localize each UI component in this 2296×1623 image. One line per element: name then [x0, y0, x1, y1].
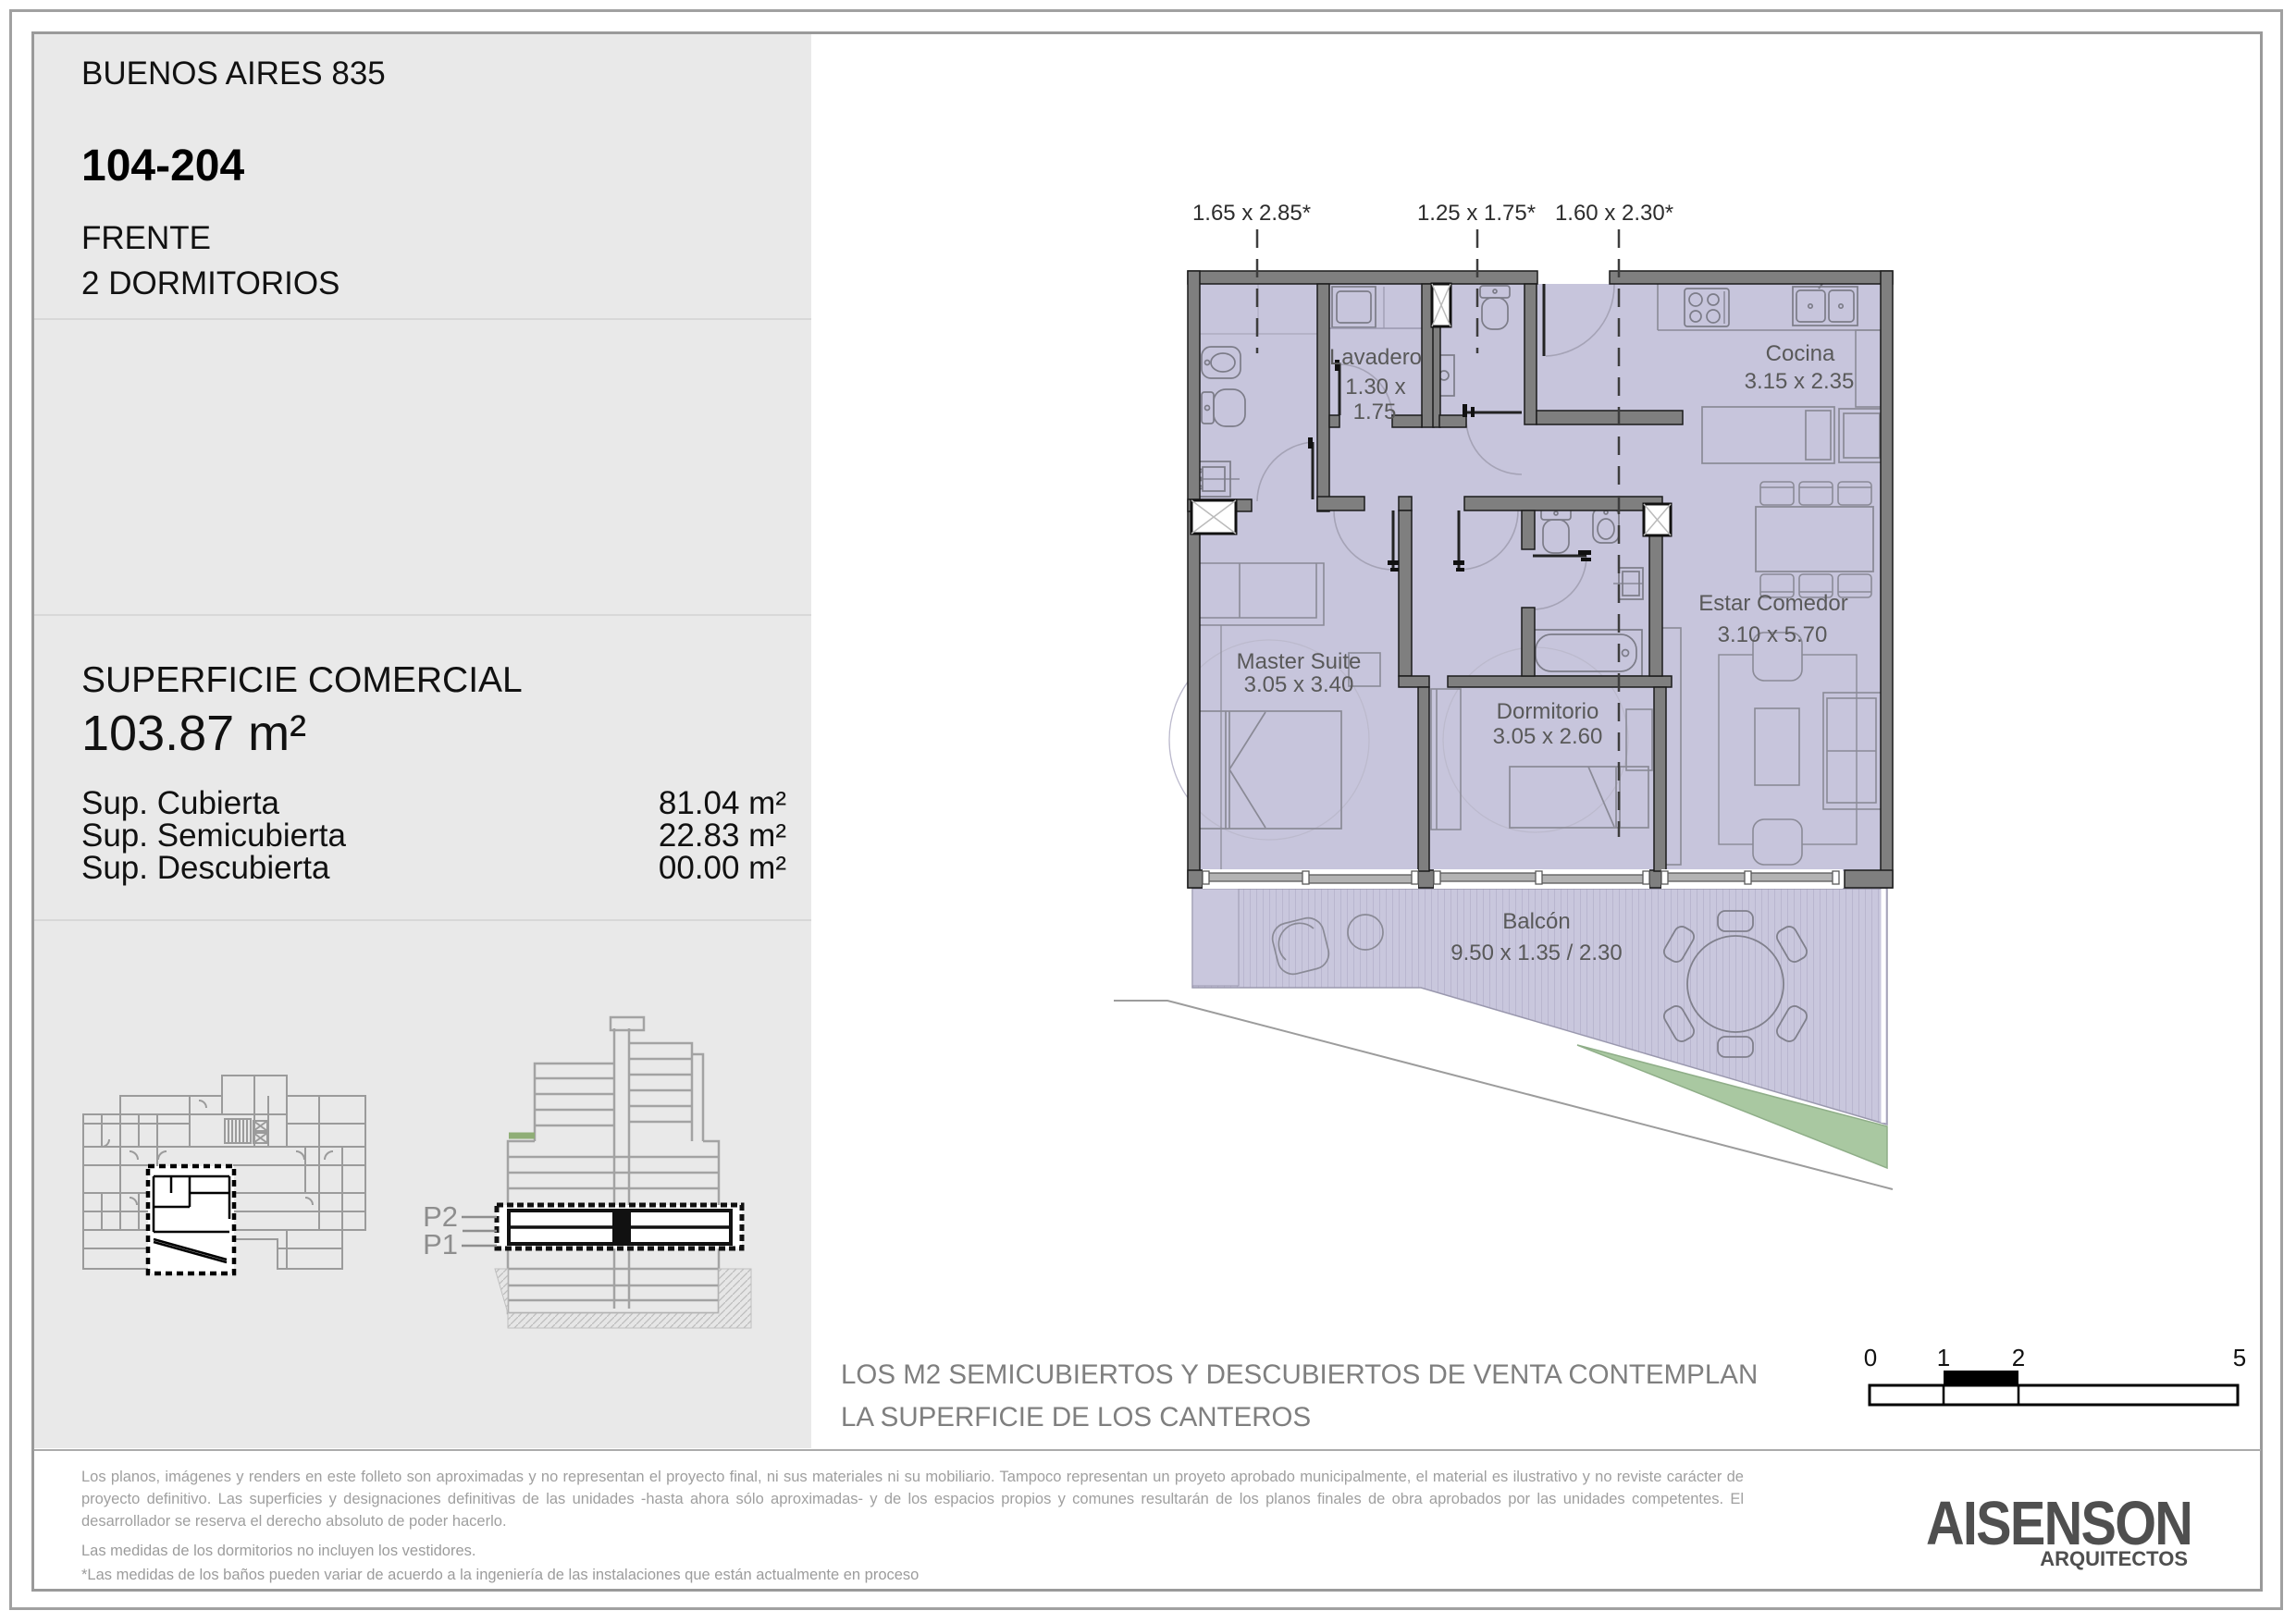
svg-text:1.75: 1.75 — [1353, 400, 1397, 424]
svg-text:1.60 x 2.30*: 1.60 x 2.30* — [1555, 201, 1673, 226]
svg-text:Estar Comedor: Estar Comedor — [1698, 591, 1847, 616]
svg-text:Dormitorio: Dormitorio — [1497, 699, 1599, 724]
svg-text:3.15 x 2.35: 3.15 x 2.35 — [1745, 369, 1855, 394]
svg-text:3.05 x 2.60: 3.05 x 2.60 — [1493, 724, 1603, 749]
svg-text:Balcón: Balcón — [1502, 909, 1570, 934]
svg-text:1: 1 — [1937, 1344, 1950, 1371]
svg-text:1.30 x: 1.30 x — [1345, 375, 1405, 400]
svg-text:9.50 x 1.35 / 2.30: 9.50 x 1.35 / 2.30 — [1450, 941, 1622, 965]
svg-text:3.10 x 5.70: 3.10 x 5.70 — [1718, 622, 1828, 647]
svg-text:Cocina: Cocina — [1766, 341, 1835, 366]
svg-text:Lavadero: Lavadero — [1329, 345, 1422, 370]
svg-text:2: 2 — [2012, 1344, 2025, 1371]
svg-text:0: 0 — [1864, 1344, 1877, 1371]
svg-text:1.25 x 1.75*: 1.25 x 1.75* — [1417, 201, 1536, 226]
svg-text:P1: P1 — [423, 1228, 458, 1260]
svg-text:5: 5 — [2233, 1344, 2246, 1371]
svg-text:3.05 x 3.40: 3.05 x 3.40 — [1244, 672, 1354, 697]
svg-text:Master Suite: Master Suite — [1237, 649, 1362, 674]
svg-text:1.65 x 2.85*: 1.65 x 2.85* — [1192, 201, 1311, 226]
